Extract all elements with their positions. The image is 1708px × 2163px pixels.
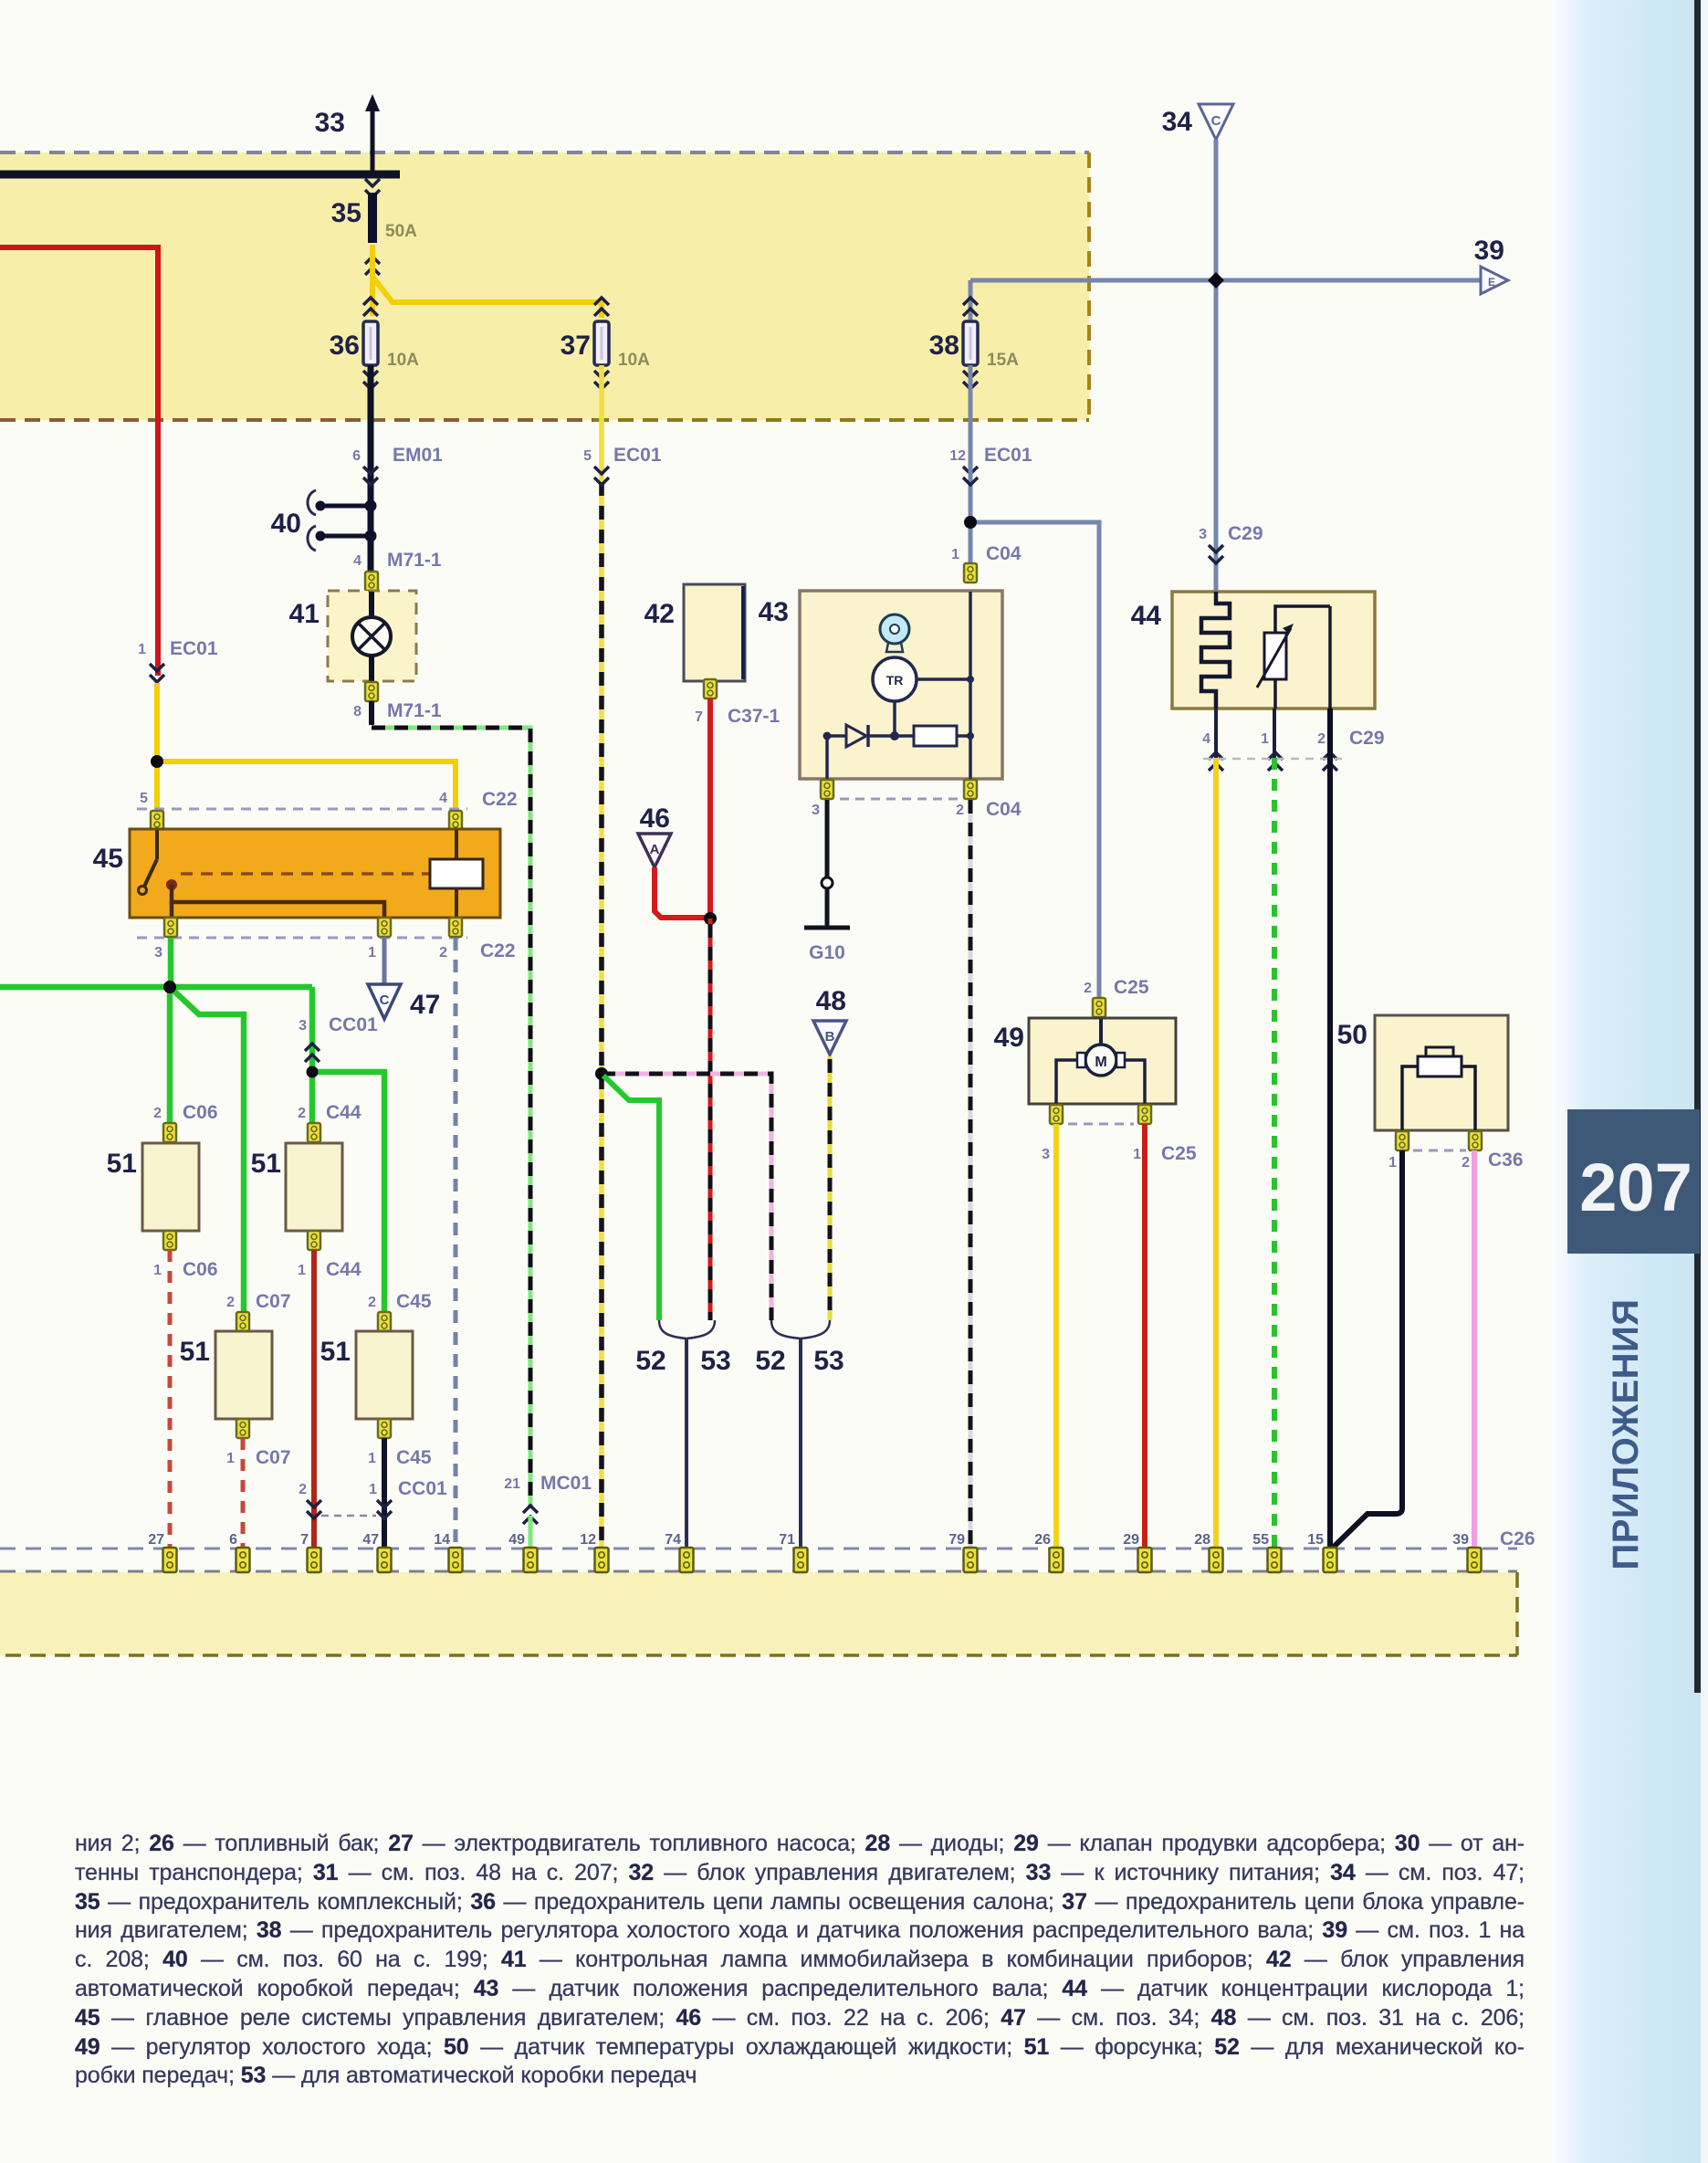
svg-text:C25: C25 (1114, 977, 1149, 998)
svg-text:46: 46 (640, 803, 670, 834)
svg-text:10A: 10A (387, 351, 419, 370)
svg-text:7: 7 (695, 709, 703, 725)
svg-text:1: 1 (138, 642, 146, 657)
svg-text:G10: G10 (809, 942, 845, 963)
svg-text:C36: C36 (1488, 1150, 1524, 1171)
svg-text:36: 36 (330, 331, 360, 361)
svg-text:EC01: EC01 (984, 445, 1032, 466)
svg-text:8: 8 (353, 704, 362, 719)
svg-text:40: 40 (271, 509, 301, 539)
svg-text:C: C (1211, 113, 1221, 129)
svg-text:5: 5 (140, 791, 148, 806)
svg-text:C37-1: C37-1 (728, 706, 781, 727)
svg-text:C44: C44 (326, 1102, 362, 1123)
svg-text:52: 52 (635, 1346, 665, 1376)
svg-text:C04: C04 (986, 799, 1022, 820)
svg-text:EC01: EC01 (170, 638, 218, 659)
svg-text:12: 12 (580, 1532, 596, 1548)
svg-text:12: 12 (949, 448, 966, 464)
svg-text:51: 51 (107, 1149, 137, 1179)
svg-text:2: 2 (153, 1106, 162, 1121)
svg-text:C: C (380, 992, 390, 1008)
svg-text:1: 1 (369, 1482, 377, 1497)
svg-text:10A: 10A (618, 351, 650, 370)
svg-text:C22: C22 (482, 789, 518, 810)
svg-text:6: 6 (352, 448, 361, 464)
svg-text:1: 1 (153, 1263, 162, 1278)
svg-text:1: 1 (1133, 1147, 1141, 1162)
svg-text:21: 21 (504, 1476, 520, 1492)
svg-text:50: 50 (1337, 1020, 1367, 1050)
svg-text:C44: C44 (326, 1259, 362, 1280)
svg-text:2: 2 (298, 1106, 306, 1121)
svg-text:37: 37 (561, 331, 591, 361)
svg-text:1: 1 (226, 1451, 235, 1466)
svg-text:53: 53 (813, 1346, 844, 1376)
svg-text:53: 53 (700, 1346, 730, 1376)
svg-text:1: 1 (368, 1451, 376, 1466)
svg-text:3: 3 (1199, 527, 1207, 542)
svg-text:7: 7 (300, 1532, 309, 1548)
svg-text:3: 3 (154, 945, 162, 961)
svg-text:34: 34 (1162, 107, 1193, 137)
svg-text:2: 2 (1462, 1155, 1470, 1171)
svg-text:CC01: CC01 (398, 1478, 447, 1499)
svg-text:43: 43 (759, 597, 789, 627)
svg-text:55: 55 (1252, 1532, 1269, 1548)
svg-text:4: 4 (1202, 731, 1210, 747)
svg-text:C04: C04 (986, 543, 1022, 564)
svg-text:M: M (1095, 1055, 1106, 1070)
svg-text:28: 28 (1194, 1532, 1210, 1548)
svg-text:79: 79 (948, 1532, 965, 1548)
svg-text:2: 2 (1084, 981, 1092, 996)
svg-text:C45: C45 (396, 1447, 432, 1468)
svg-text:EM01: EM01 (393, 445, 443, 466)
svg-text:1: 1 (368, 945, 376, 961)
svg-text:45: 45 (93, 844, 123, 874)
svg-text:47: 47 (410, 990, 440, 1020)
svg-text:TR: TR (886, 673, 904, 688)
svg-text:C29: C29 (1228, 523, 1263, 544)
svg-text:A: A (650, 842, 660, 857)
svg-text:EC01: EC01 (613, 445, 662, 466)
svg-text:2: 2 (368, 1295, 376, 1310)
svg-text:3: 3 (1042, 1147, 1050, 1162)
svg-text:1: 1 (1388, 1155, 1397, 1171)
svg-text:C22: C22 (480, 940, 516, 961)
svg-text:MC01: MC01 (540, 1473, 592, 1494)
svg-text:1: 1 (298, 1263, 306, 1278)
svg-text:4: 4 (439, 791, 447, 806)
svg-text:50A: 50A (385, 222, 417, 241)
svg-text:33: 33 (315, 108, 345, 138)
svg-text:C45: C45 (396, 1291, 432, 1312)
svg-text:3: 3 (812, 803, 820, 818)
svg-text:ПРИЛОЖЕНИЯ: ПРИЛОЖЕНИЯ (1606, 1298, 1646, 1570)
svg-text:1: 1 (951, 547, 959, 562)
svg-text:3: 3 (299, 1018, 307, 1034)
svg-text:1: 1 (1261, 731, 1269, 747)
svg-text:74: 74 (665, 1532, 681, 1548)
svg-text:39: 39 (1452, 1532, 1469, 1548)
svg-text:C06: C06 (183, 1102, 218, 1123)
svg-text:C29: C29 (1349, 728, 1385, 749)
svg-text:2: 2 (1317, 731, 1326, 747)
svg-text:42: 42 (644, 599, 675, 629)
svg-text:39: 39 (1474, 236, 1504, 266)
svg-text:C25: C25 (1161, 1143, 1197, 1164)
svg-text:2: 2 (299, 1482, 307, 1497)
svg-text:26: 26 (1034, 1532, 1051, 1548)
svg-text:B: B (825, 1029, 835, 1045)
svg-text:M71-1: M71-1 (387, 550, 442, 571)
svg-text:2: 2 (956, 803, 964, 818)
svg-text:47: 47 (362, 1532, 379, 1548)
svg-text:C26: C26 (1500, 1528, 1535, 1549)
svg-text:6: 6 (229, 1532, 237, 1548)
svg-text:15A: 15A (987, 351, 1019, 370)
svg-text:48: 48 (816, 986, 846, 1016)
svg-text:CC01: CC01 (329, 1014, 378, 1035)
svg-text:C07: C07 (256, 1447, 291, 1468)
svg-text:4: 4 (353, 553, 362, 569)
svg-text:29: 29 (1123, 1532, 1139, 1548)
svg-text:M71-1: M71-1 (387, 700, 442, 721)
svg-text:15: 15 (1307, 1532, 1324, 1548)
svg-text:51: 51 (251, 1149, 281, 1179)
svg-text:44: 44 (1131, 601, 1162, 631)
svg-text:207: 207 (1579, 1150, 1692, 1225)
svg-text:E: E (1488, 276, 1495, 289)
svg-text:51: 51 (180, 1337, 210, 1367)
svg-text:52: 52 (755, 1346, 785, 1376)
svg-text:38: 38 (929, 331, 959, 361)
svg-text:5: 5 (583, 448, 592, 464)
svg-text:C06: C06 (183, 1259, 218, 1280)
svg-text:35: 35 (331, 198, 362, 228)
svg-text:49: 49 (508, 1532, 525, 1548)
svg-text:51: 51 (320, 1337, 351, 1367)
svg-text:14: 14 (434, 1532, 450, 1548)
svg-text:41: 41 (289, 599, 320, 629)
svg-text:27: 27 (148, 1532, 164, 1548)
svg-text:71: 71 (779, 1532, 795, 1548)
svg-text:49: 49 (994, 1023, 1024, 1053)
svg-text:C07: C07 (256, 1291, 291, 1312)
svg-text:2: 2 (439, 945, 447, 961)
svg-text:2: 2 (226, 1295, 235, 1310)
